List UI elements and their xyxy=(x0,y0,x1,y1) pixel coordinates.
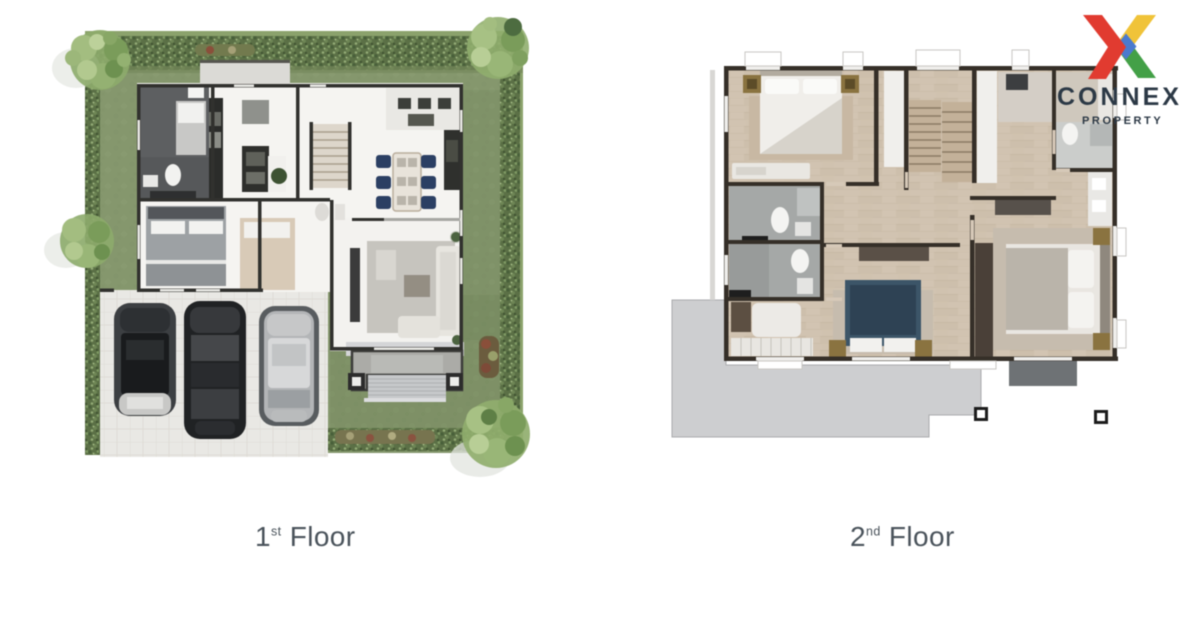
svg-text:PROPERTY: PROPERTY xyxy=(1082,115,1163,127)
svg-text:CONNEX: CONNEX xyxy=(1057,83,1182,111)
